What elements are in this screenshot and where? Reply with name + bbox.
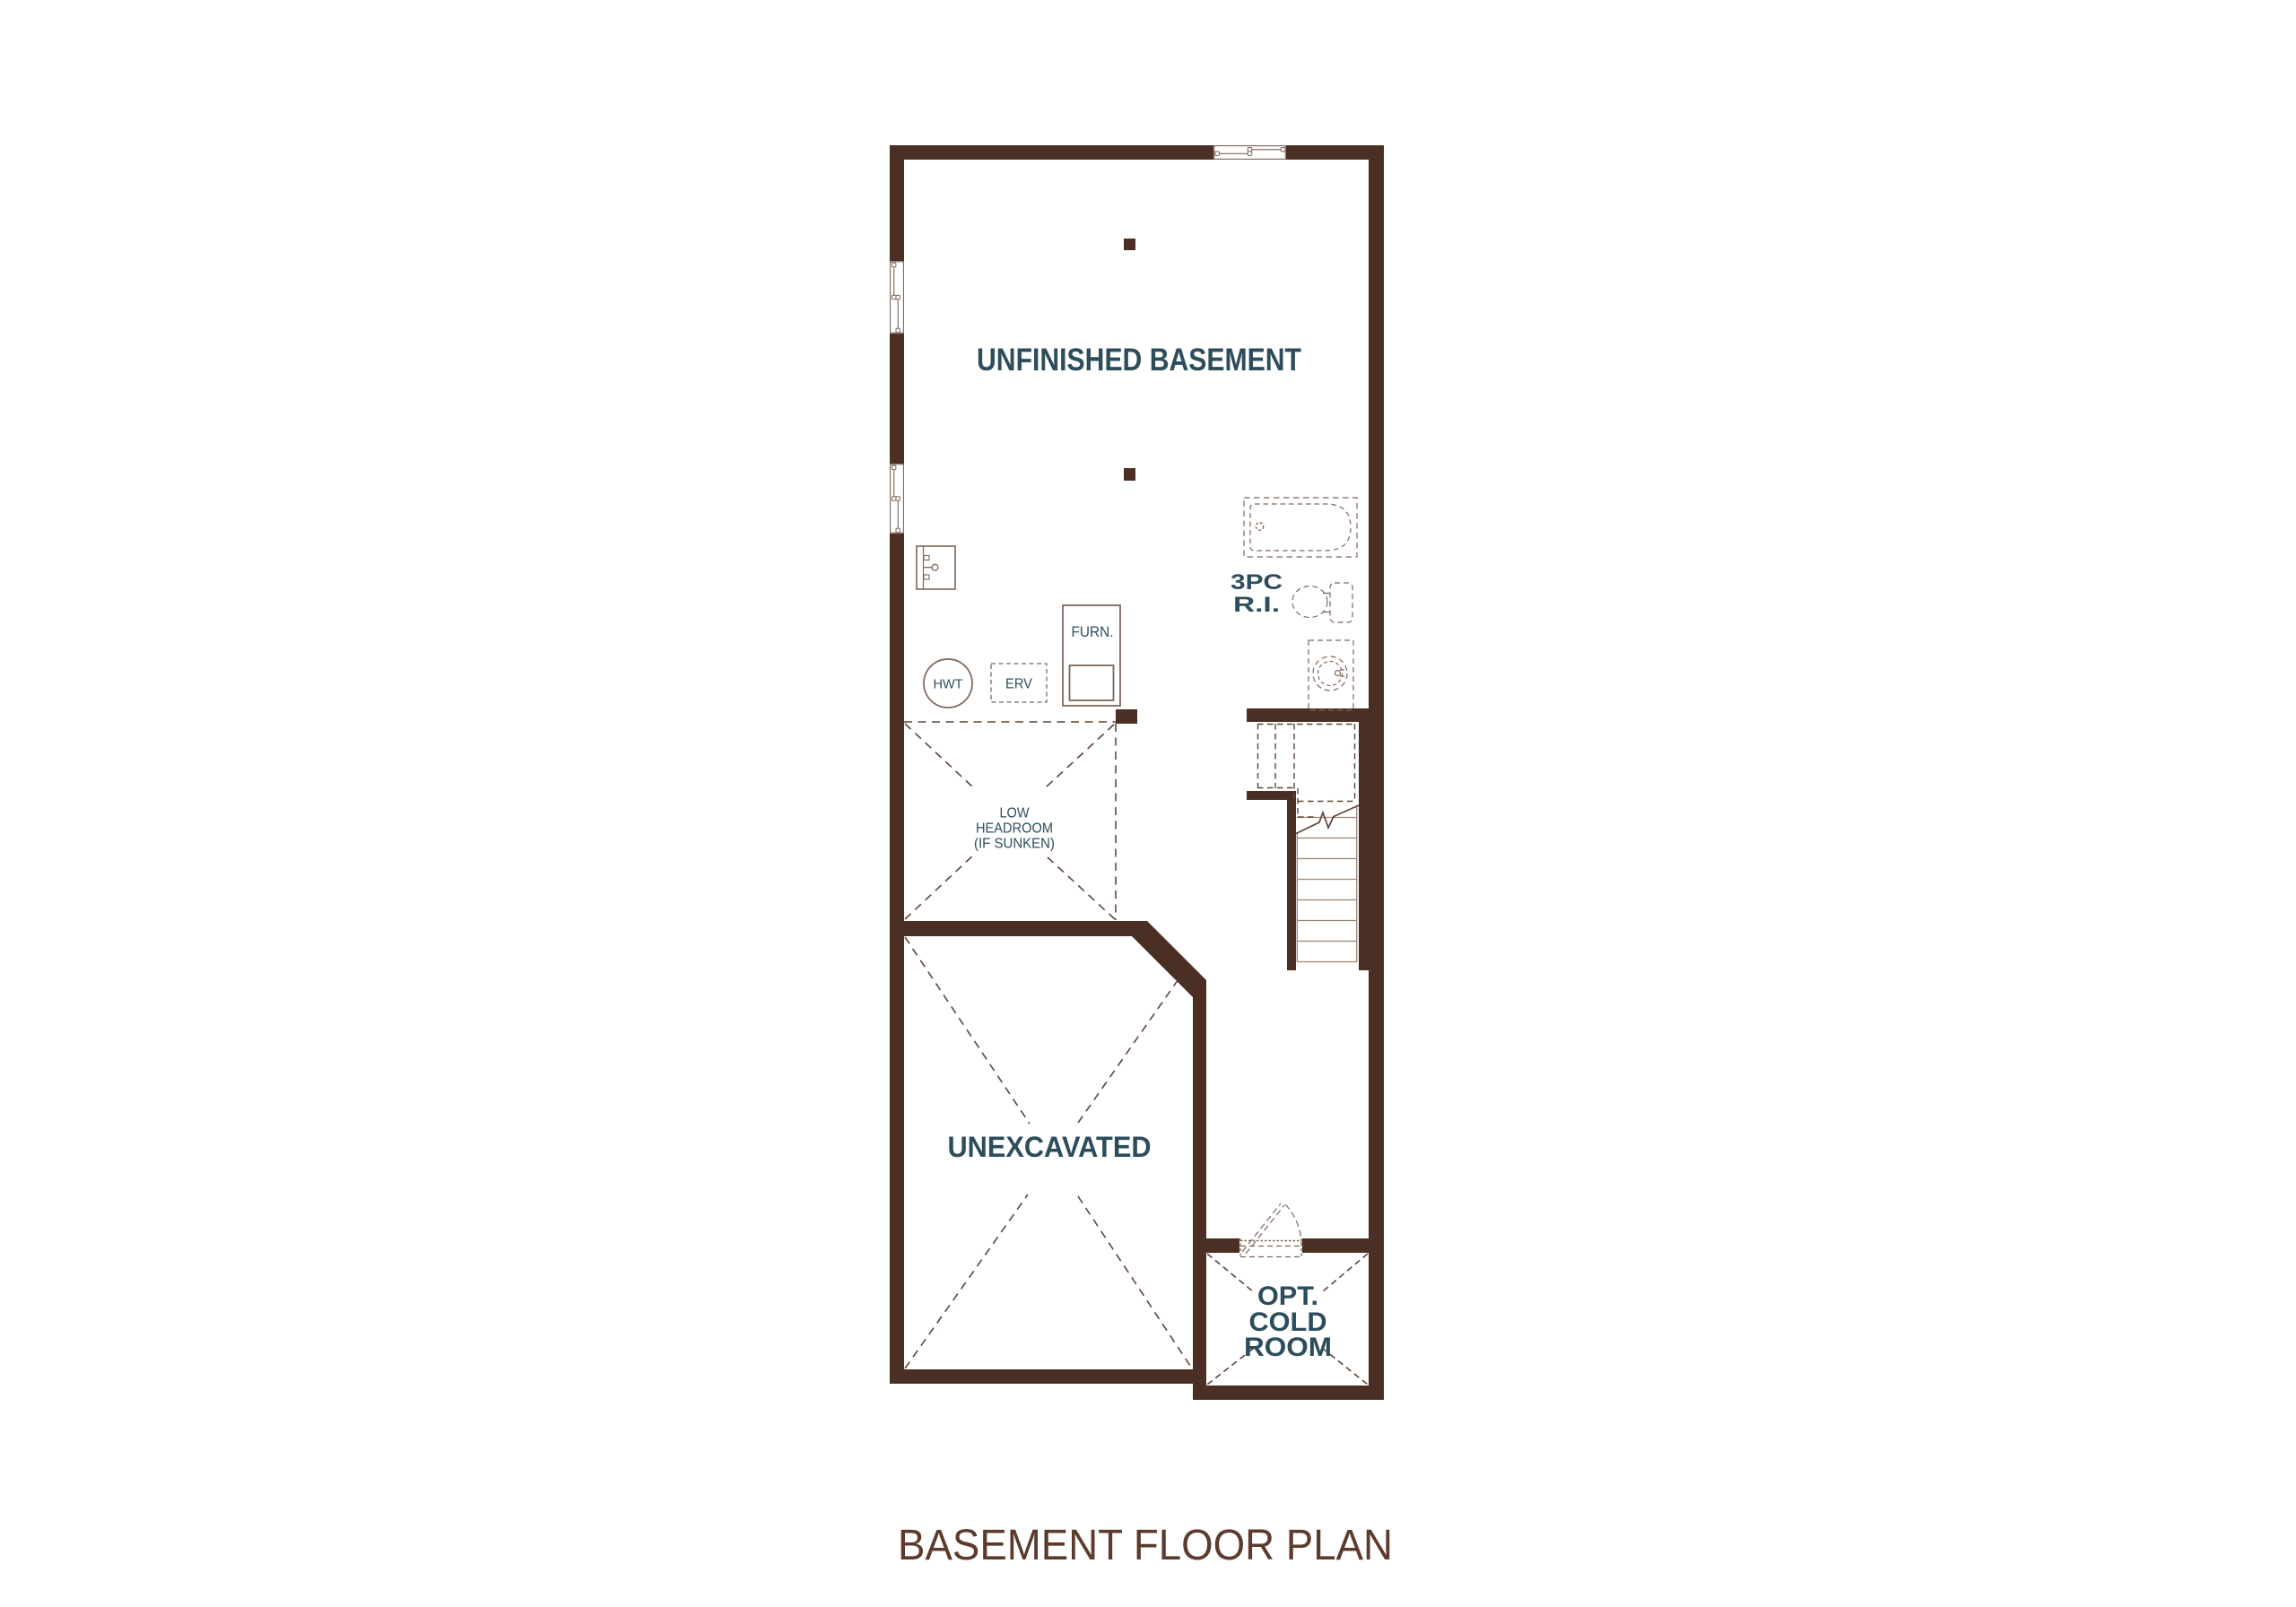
svg-text:3PC: 3PC: [1231, 570, 1283, 595]
svg-text:FURN.: FURN.: [1072, 623, 1114, 640]
svg-text:UNFINISHED BASEMENT: UNFINISHED BASEMENT: [977, 343, 1301, 378]
svg-text:UNEXCAVATED: UNEXCAVATED: [948, 1131, 1152, 1163]
svg-text:(IF SUNKEN): (IF SUNKEN): [974, 837, 1055, 852]
svg-text:R.I.: R.I.: [1233, 593, 1280, 617]
svg-text:HEADROOM: HEADROOM: [976, 821, 1053, 837]
svg-text:ERV: ERV: [1005, 677, 1032, 692]
svg-text:LOW: LOW: [1000, 806, 1031, 821]
svg-text:BASEMENT FLOOR PLAN: BASEMENT FLOOR PLAN: [898, 1522, 1393, 1569]
svg-text:ROOM: ROOM: [1244, 1333, 1332, 1362]
svg-text:HWT: HWT: [934, 677, 963, 692]
